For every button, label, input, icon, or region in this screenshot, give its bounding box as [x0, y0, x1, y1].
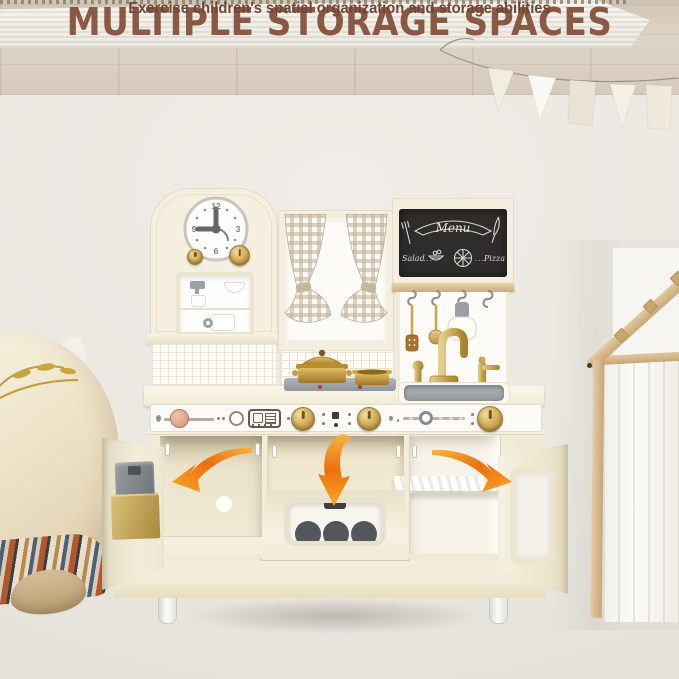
dispenser-slot — [128, 466, 141, 475]
compartment-shelf — [180, 308, 250, 310]
sink-knob — [477, 406, 503, 432]
tower-shelf-board — [147, 334, 280, 344]
indicator-dots — [471, 413, 474, 416]
chalk-drawings: Menu Salad .... .... Pizza — [399, 209, 507, 277]
display-buttons — [252, 424, 254, 426]
gold-faucet — [404, 316, 504, 388]
door-dispenser — [110, 461, 161, 541]
chalkboard-item-pizza: Pizza — [483, 254, 505, 263]
pillow-leaf-pattern — [0, 350, 106, 408]
left-cabinet-floor — [160, 536, 266, 554]
stove-knob — [291, 407, 315, 431]
square-icon — [332, 412, 339, 419]
water-drop-icon — [156, 415, 161, 422]
door-latch — [396, 445, 401, 458]
kitchen-base — [114, 556, 546, 598]
toy-kettle — [210, 314, 235, 331]
oven-wheel — [323, 521, 349, 546]
arrow-into-left-cabinet-icon — [168, 444, 254, 500]
round-button — [229, 411, 244, 426]
round-icon — [334, 423, 338, 427]
door-window — [510, 468, 556, 564]
kettle-handle — [203, 318, 213, 328]
gingham-curtains — [281, 214, 391, 348]
dispenser-gray-box — [115, 461, 155, 496]
oven-wheel — [295, 521, 321, 546]
tent-screw — [587, 363, 592, 368]
bunting-flags — [430, 28, 679, 146]
sink-basin — [404, 385, 504, 401]
tent-fabric-curtain — [603, 356, 679, 622]
toy-tap — [190, 281, 205, 289]
stove-knob — [357, 407, 381, 431]
dish-compartment — [176, 272, 254, 336]
arrow-into-right-cabinet-icon — [430, 444, 516, 496]
chalkboard-dots: .... — [420, 254, 433, 263]
ring-slider-knob — [419, 411, 433, 425]
clock-number: 12 — [211, 201, 220, 211]
door-latch — [255, 443, 260, 456]
page-subtitle: Exercise children's spatial organization… — [27, 0, 652, 18]
control-panel — [150, 404, 542, 432]
arrow-into-oven-icon — [312, 432, 358, 510]
slider-knob — [170, 409, 189, 428]
chalkboard-title: Menu — [435, 221, 471, 235]
indicator-dot — [287, 417, 290, 420]
gold-pots — [290, 346, 394, 390]
slider-track — [403, 417, 465, 420]
indicator-dots — [322, 413, 325, 416]
product-photo-scene: 12 3 6 9 — [0, 0, 679, 679]
indicator-dots — [348, 413, 351, 416]
dispenser-gold-box — [111, 493, 161, 540]
backsplash-lattice — [151, 344, 277, 386]
toy-cup — [191, 295, 206, 307]
door-latch — [412, 445, 417, 458]
clock-number: 6 — [214, 246, 219, 256]
toy-bowl — [224, 282, 245, 293]
clock-number: 3 — [236, 224, 241, 234]
water-drop-icon — [389, 416, 393, 421]
door-latch — [272, 445, 277, 458]
clock-number: 9 — [192, 224, 197, 234]
left-cabinet-door-open — [102, 438, 164, 590]
oven-wheel — [351, 521, 377, 546]
panel-icon-dots — [217, 417, 220, 420]
timer-knob — [229, 245, 250, 266]
timer-knob — [187, 249, 203, 265]
